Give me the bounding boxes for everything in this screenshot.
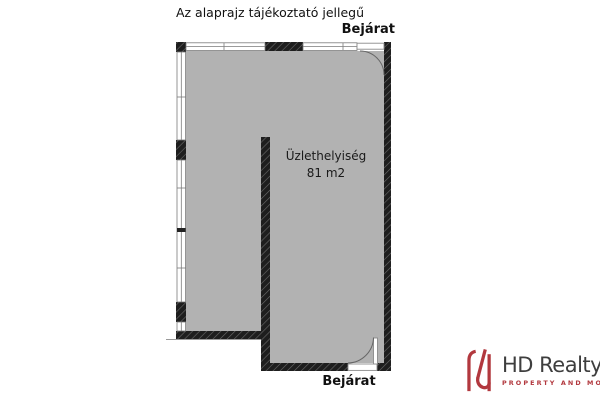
- wall-left-pillar-lower: [176, 302, 186, 322]
- room-area: 81 m2: [251, 165, 401, 182]
- wall-bottom-right-right-segment: [377, 363, 391, 371]
- logo-texts: HD Realty PROPERTY AND MORE: [502, 355, 600, 387]
- wall-left-pillar-upper: [176, 140, 186, 160]
- logo-name: HD Realty: [502, 355, 600, 376]
- window-left-lower: [177, 160, 186, 302]
- room-label: Üzlethelyiség 81 m2: [251, 148, 401, 182]
- window-left-upper: [177, 52, 186, 140]
- entrance-label-bottom: Bejárat: [309, 374, 389, 389]
- wall-bottom-left: [176, 331, 262, 339]
- window-top-right: [303, 43, 357, 51]
- floor-plan-drawing: [0, 0, 600, 400]
- window-left-corner: [177, 322, 186, 331]
- floor-plan-page: Az alaprajz tájékoztató jellegű Bejárat: [0, 0, 600, 400]
- door-threshold-bottom: [348, 364, 377, 370]
- room-name: Üzlethelyiség: [251, 148, 401, 165]
- wall-bottom-right-left-segment: [261, 363, 348, 371]
- door-leaf-bottom: [374, 338, 378, 364]
- hd-monogram-icon: [463, 347, 497, 395]
- floor-area: [186, 51, 384, 363]
- wall-top-middle: [265, 42, 303, 51]
- logo-tagline: PROPERTY AND MORE: [502, 379, 600, 387]
- window-top-left: [186, 43, 265, 51]
- door-leaf-top: [357, 43, 384, 49]
- wall-top-left-corner: [176, 42, 186, 52]
- wall-right: [384, 42, 391, 371]
- agency-logo: HD Realty PROPERTY AND MORE: [463, 342, 600, 400]
